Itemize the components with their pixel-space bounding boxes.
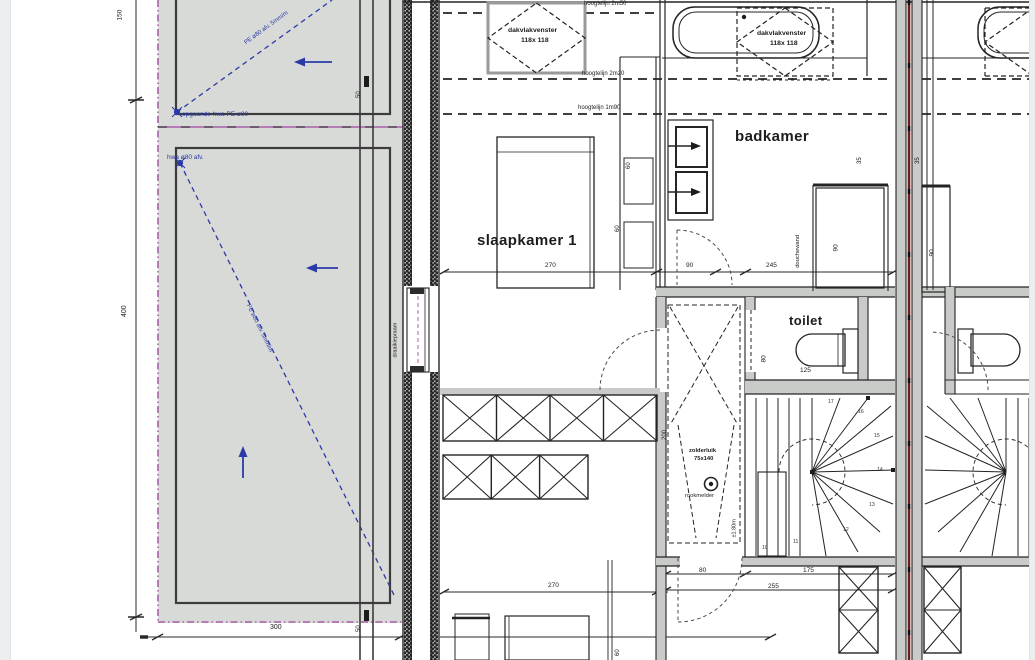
floorplan-linework [0,0,1035,660]
bottom-room [452,560,612,660]
neighbor-staircase [925,398,1035,556]
floorplan-canvas: slaapkamer 1badkamertoiletdakvlakvenster… [0,0,1035,660]
window-draaikiepraam [407,288,429,372]
neighbor-roof-window [985,8,1033,76]
wardrobes [440,388,961,653]
roof-window-1 [488,3,585,73]
neighbor-bathtub [978,7,1035,58]
nightstand-chase [620,57,660,290]
roof-terrace [158,0,407,623]
smoke-detector [705,478,718,491]
height-lines [443,13,1029,114]
winder-staircase [745,394,895,557]
page-edge-right [1029,0,1035,660]
exterior-wall [403,0,440,660]
washbasins [668,120,713,220]
toilet-bowl [796,329,858,373]
bathtub [673,7,819,58]
neighbor-walls [922,0,950,292]
attic-hatch [668,305,740,543]
shower [813,185,888,291]
roof-window-2 [737,8,833,80]
bed [497,137,594,288]
party-wall [896,0,922,660]
page-edge-left [0,0,11,660]
neighbor-toilet-bowl [945,287,1029,394]
